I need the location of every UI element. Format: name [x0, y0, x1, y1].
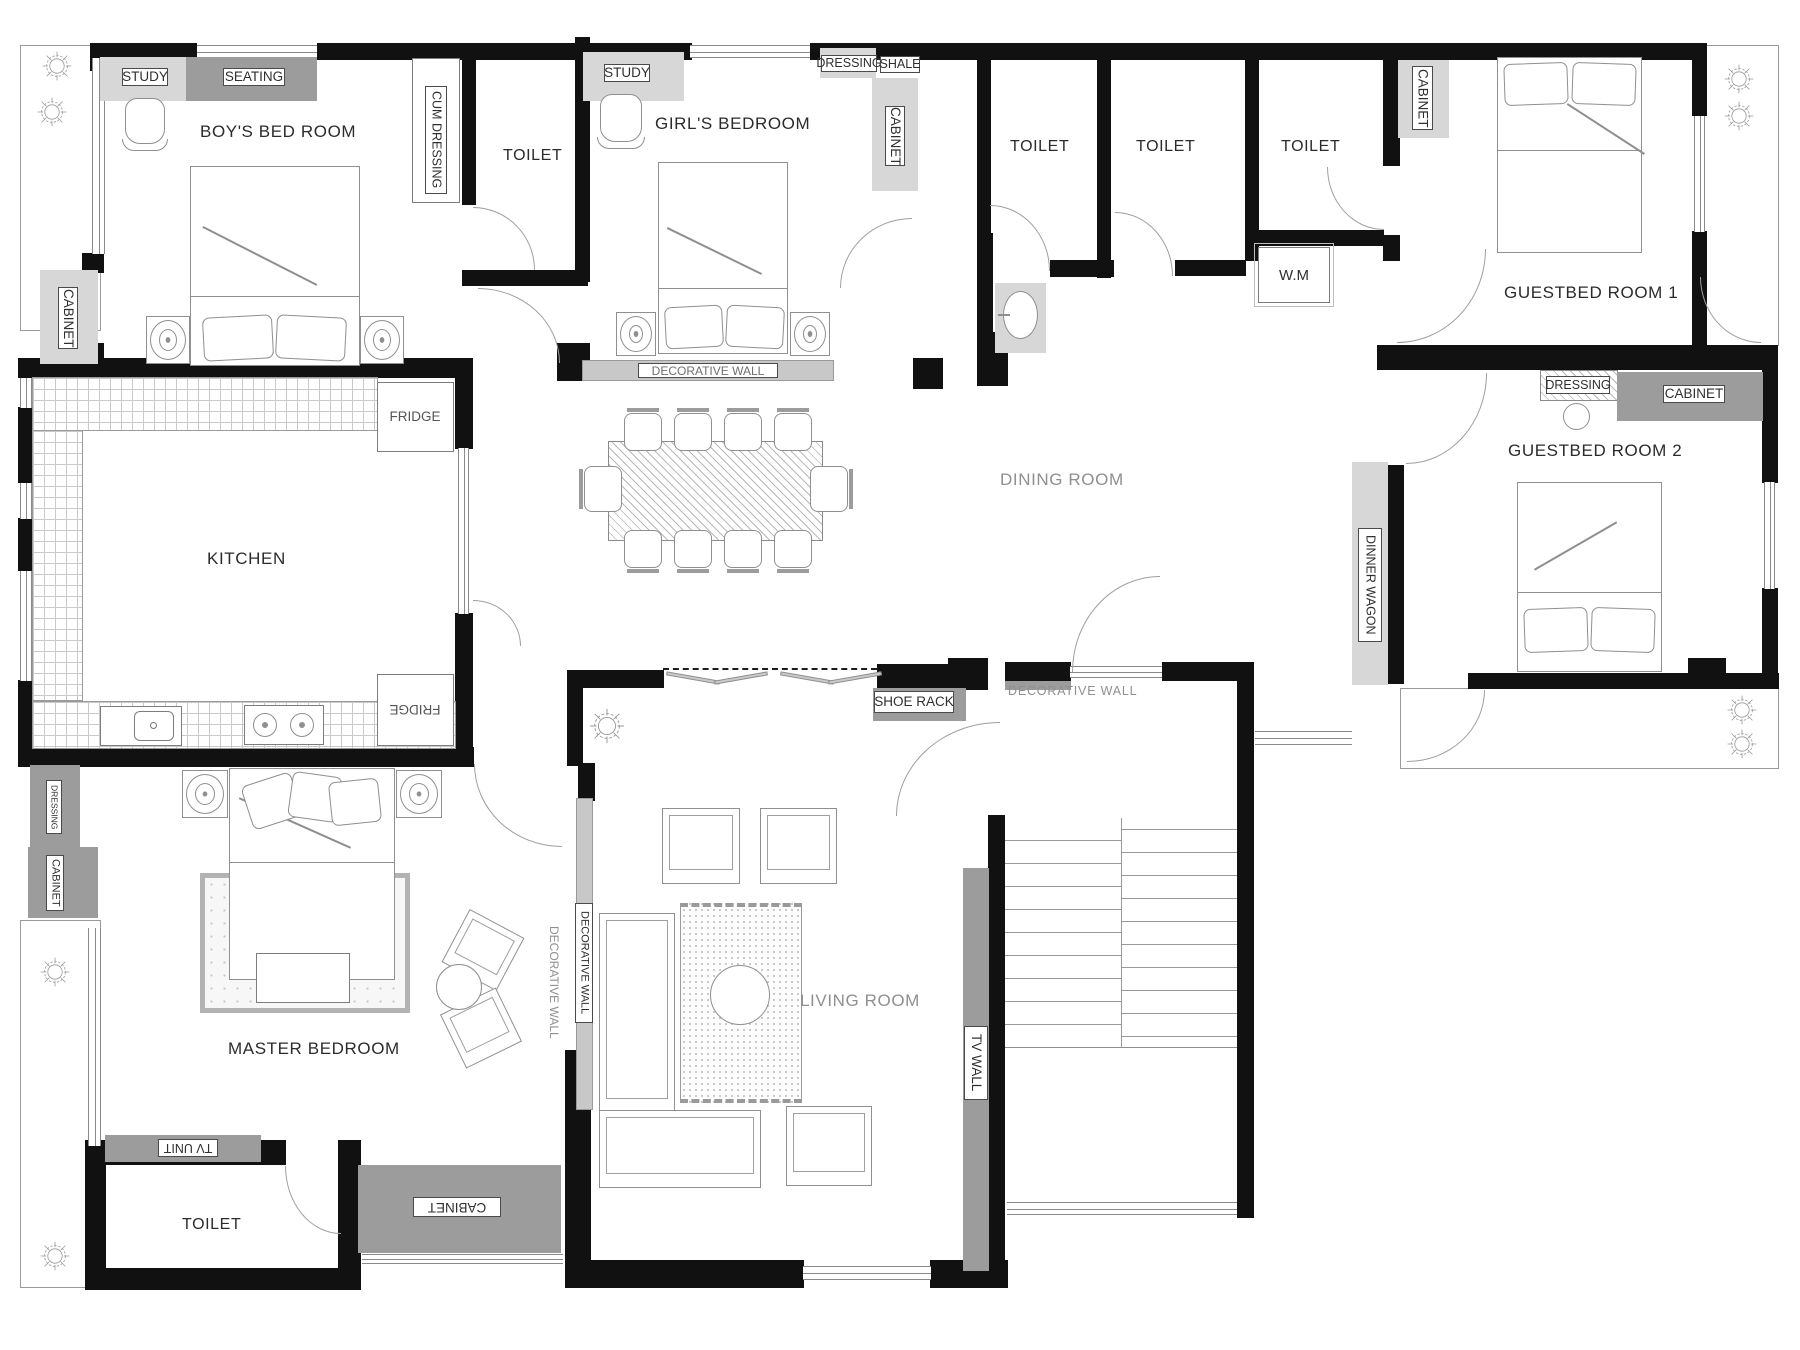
desk-chair — [600, 94, 642, 142]
plant-icon — [39, 1240, 71, 1272]
window — [88, 928, 101, 1146]
plant-icon — [39, 956, 71, 988]
room-label-toilet: TOILET — [503, 147, 562, 165]
armchair — [786, 1106, 872, 1186]
stair-flight — [1122, 818, 1237, 1048]
wall — [590, 1260, 804, 1288]
room-label-girls-bedroom: GIRL'S BEDROOM — [655, 114, 810, 134]
dining-chair — [584, 466, 622, 512]
armchair — [662, 808, 740, 884]
wall — [913, 358, 943, 389]
door-arc — [840, 218, 912, 288]
pillow — [328, 778, 382, 827]
nightstand-fan — [790, 312, 830, 356]
dining-chair — [674, 530, 712, 568]
kitchen-counter — [32, 430, 83, 701]
plant-icon — [1723, 63, 1755, 95]
bed-sheet-line — [1518, 592, 1661, 593]
plant-icon — [36, 96, 68, 128]
sofa-section — [599, 913, 675, 1113]
plant-icon — [41, 50, 73, 82]
coffee-table — [710, 965, 770, 1025]
nightstand-fan — [396, 770, 442, 818]
wall — [578, 763, 595, 801]
room-label-boys-bedroom: BOY'S BED ROOM — [200, 122, 356, 142]
wall — [455, 613, 473, 766]
folding-door-track — [663, 668, 877, 670]
wall — [948, 658, 988, 690]
window — [458, 448, 469, 614]
room-label-toilet: TOILET — [1010, 138, 1069, 156]
dressing-label: DRESSING — [1546, 376, 1610, 394]
desk-chair — [125, 98, 165, 144]
cabinet-label: CABINET — [413, 1197, 501, 1217]
room-label-living-room: LIVING ROOM — [800, 991, 920, 1011]
floor-plan: STUDY SEATING BOY'S BED ROOM CUM DRESSIN… — [0, 0, 1800, 1350]
folding-door-leaf — [828, 671, 882, 684]
bed-sheet-line — [1498, 150, 1641, 151]
wall — [455, 360, 473, 449]
folding-door-leaf — [780, 671, 834, 684]
window — [1764, 482, 1775, 589]
pillow — [725, 305, 785, 350]
bed-sheet-line — [191, 296, 359, 297]
window — [803, 1266, 931, 1280]
room-label-guestbed-room-1: GUESTBED ROOM 1 — [1504, 283, 1678, 303]
door-arc — [473, 207, 535, 270]
wall — [462, 55, 476, 205]
cabinet-label: CABINET — [1663, 385, 1725, 403]
tap — [998, 314, 1010, 316]
window — [20, 378, 32, 408]
wall — [462, 270, 588, 286]
cabinet-label: CABINET — [1412, 66, 1433, 130]
room-label-kitchen: KITCHEN — [207, 549, 286, 569]
door-arc — [1072, 576, 1160, 672]
window — [362, 1254, 563, 1264]
folding-door-leaf — [666, 671, 720, 684]
window — [1694, 116, 1705, 232]
wm-label: W.M — [1266, 266, 1322, 284]
stair-flight — [1005, 818, 1122, 1048]
stool — [1563, 403, 1590, 430]
room-label-toilet: TOILET — [182, 1216, 241, 1234]
nightstand-fan — [360, 316, 404, 364]
door-arc — [990, 205, 1050, 271]
shoe-rack-label: SHOE RACK — [874, 691, 954, 713]
dining-chair — [674, 413, 712, 451]
decorative-wall-label: DECORATIVE WALL — [547, 926, 561, 1039]
door-arc — [478, 288, 560, 363]
stove-burner — [287, 710, 317, 740]
stair-edge — [1005, 1047, 1237, 1048]
wall — [18, 747, 474, 767]
wall — [1258, 230, 1384, 246]
fridge-label: FRIDGE — [384, 700, 446, 718]
door-arc — [896, 722, 1000, 816]
door-arc — [473, 600, 521, 646]
bed-bench — [256, 953, 350, 1003]
pillow — [1571, 62, 1636, 106]
pillow — [664, 305, 724, 350]
sink-drain — [150, 722, 157, 729]
room-label-guestbed-room-2: GUESTBED ROOM 2 — [1508, 441, 1682, 461]
sofa-section — [599, 1110, 761, 1188]
wall — [1468, 673, 1779, 689]
seating-label: SEATING — [223, 68, 285, 86]
dining-chair — [724, 413, 762, 451]
shale-label: SHALE — [880, 56, 920, 73]
dining-table — [608, 441, 823, 541]
door-arc — [1406, 373, 1487, 464]
window — [20, 571, 32, 681]
door-arc — [285, 1166, 341, 1234]
dinner-wagon-label: DINNER WAGON — [1358, 528, 1382, 642]
decorative-wall-label: DECORATIVE WALL — [575, 903, 593, 1023]
wall — [1692, 43, 1707, 116]
pillow — [1503, 62, 1568, 106]
wall — [85, 1268, 361, 1290]
wall — [1050, 260, 1114, 277]
cabinet-label: CABINET — [885, 106, 905, 166]
dining-chair — [774, 413, 812, 451]
tv-unit-label: TV UNIT — [158, 1139, 218, 1157]
nightstand-fan — [146, 316, 190, 364]
nightstand-fan — [182, 770, 228, 818]
wall — [1097, 58, 1111, 278]
plant-icon — [588, 706, 626, 746]
stove-burner — [250, 710, 280, 740]
wall — [1237, 662, 1254, 1218]
window — [1007, 1202, 1237, 1215]
wall — [1005, 662, 1071, 681]
dining-chair — [624, 530, 662, 568]
dining-chair — [774, 530, 812, 568]
plant-icon — [1723, 100, 1755, 132]
pillow — [1590, 607, 1655, 653]
dining-chair — [624, 413, 662, 451]
plant-icon — [1726, 694, 1758, 726]
room-label-master-bedroom: MASTER BEDROOM — [228, 1039, 400, 1059]
wall — [1688, 658, 1726, 674]
study-label: STUDY — [122, 68, 168, 86]
armchair — [760, 808, 837, 884]
decorative-wall-label: DECORATIVE WALL — [1008, 684, 1137, 698]
folding-door-leaf — [714, 671, 768, 684]
nightstand-fan — [616, 312, 656, 356]
wall — [1175, 260, 1246, 276]
cabinet-label: CABINET — [58, 287, 78, 349]
bed-sheet-line — [230, 862, 394, 863]
dressing-label: DRESSING — [821, 55, 877, 72]
window — [1255, 731, 1352, 745]
dining-chair — [810, 466, 848, 512]
room-label-toilet: TOILET — [1136, 138, 1195, 156]
cabinet-label: CABINET — [46, 855, 64, 911]
dining-chair — [724, 530, 762, 568]
wall — [977, 43, 991, 235]
room-label-dining-room: DINING ROOM — [1000, 470, 1124, 490]
side-table — [436, 964, 482, 1010]
window — [20, 483, 32, 519]
wall — [567, 670, 664, 688]
dressing-label: DRESSING — [46, 780, 62, 834]
wall — [1762, 370, 1778, 483]
wall — [1377, 345, 1778, 370]
window — [690, 45, 810, 58]
decorative-wall-label: DECORATIVE WALL — [638, 363, 778, 378]
study-label: STUDY — [604, 64, 650, 82]
wall — [988, 815, 1005, 1288]
kitchen-counter — [32, 377, 378, 431]
fridge-label: FRIDGE — [384, 408, 446, 426]
door-arc — [474, 764, 562, 847]
bed-sheet-line — [659, 288, 787, 289]
door-arc — [1397, 249, 1486, 343]
tv-wall-label: TV WALL — [964, 1026, 988, 1100]
plant-icon — [1726, 728, 1758, 760]
room-label-toilet: TOILET — [1281, 138, 1340, 156]
door-arc — [1327, 167, 1384, 230]
cum-dressing-label: CUM DRESSING — [425, 86, 447, 194]
pillow — [1523, 607, 1588, 653]
wall — [1388, 465, 1404, 684]
pillow — [275, 314, 347, 362]
wall — [1245, 58, 1259, 261]
staircase — [1005, 818, 1237, 1048]
door-arc — [1115, 212, 1173, 276]
pillow — [202, 314, 274, 362]
